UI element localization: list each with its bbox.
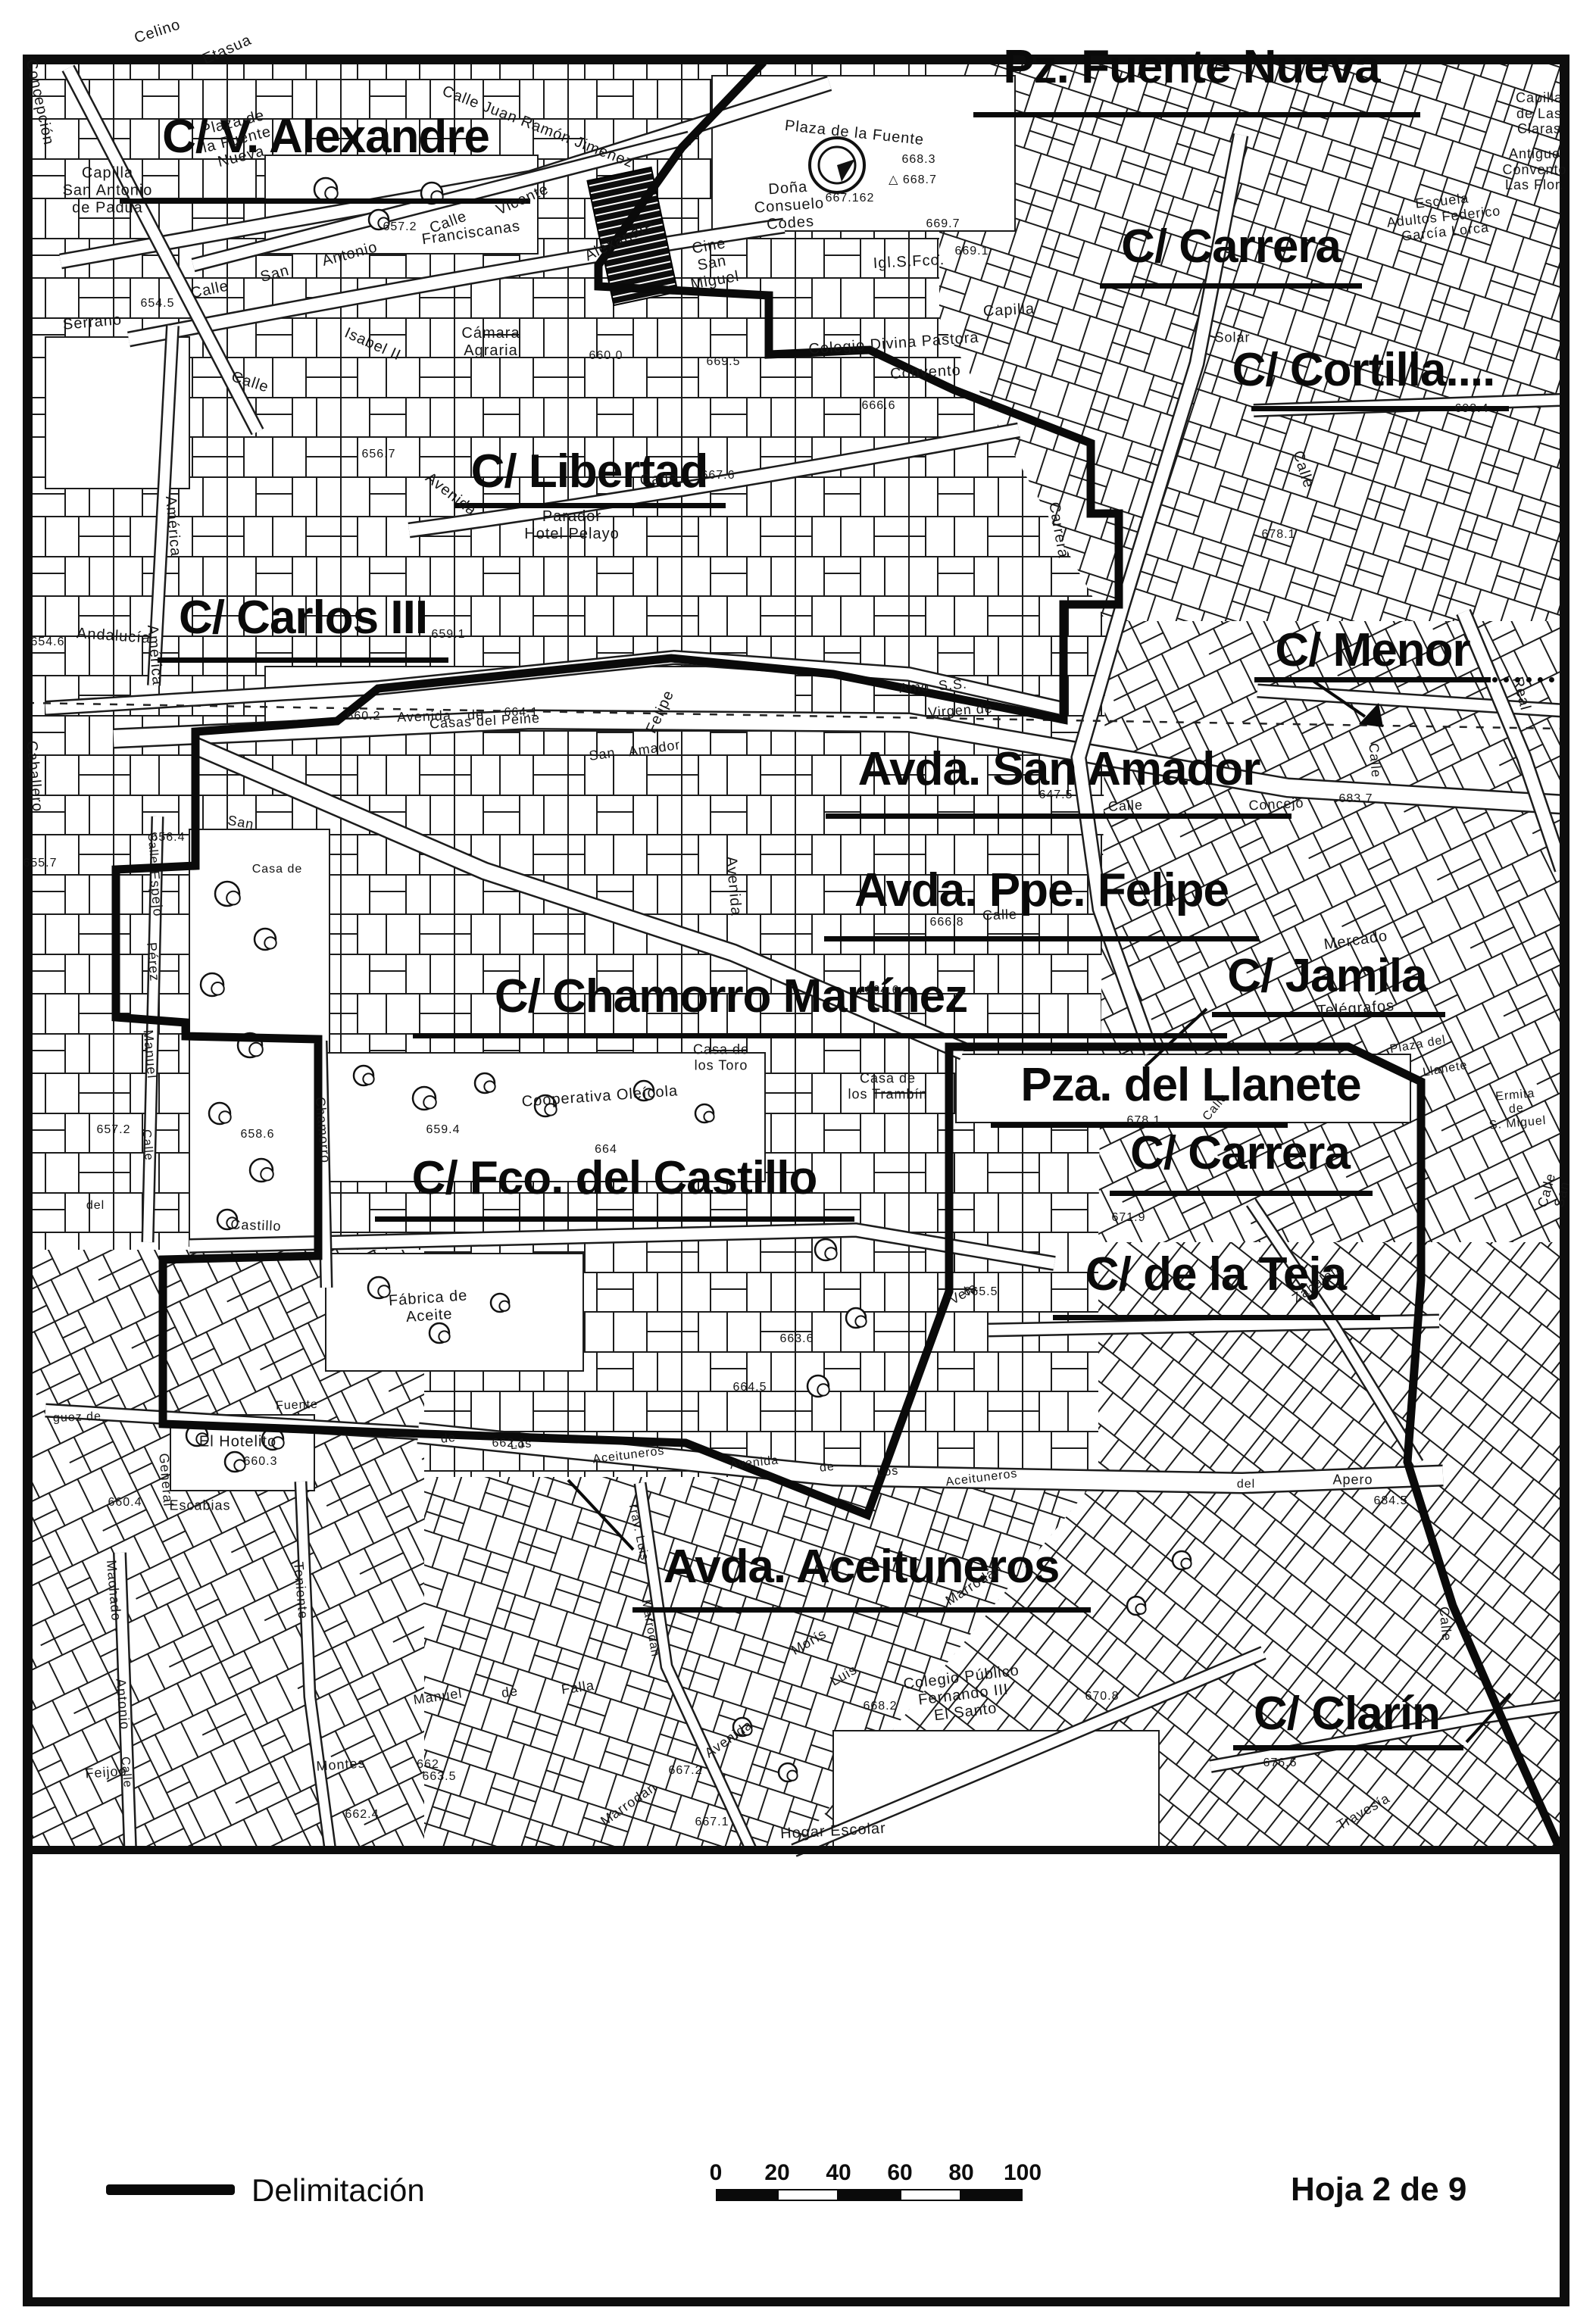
label-underline [1254,677,1491,682]
tree-icon [226,891,240,905]
scale-bar-segment [716,2189,777,2201]
map-minor-label: Doña Consuelo Codes [752,177,826,234]
label-underline [158,657,448,663]
map-minor-label: Apero [1332,1472,1373,1488]
street-major-label: C/ Carrera [1130,1130,1350,1177]
map-minor-label: Concejo [1248,795,1304,813]
label-underline [632,1607,1091,1613]
scale-tick-label: 60 [887,2160,912,2186]
border-bottom [23,2297,1569,2306]
border-left [23,55,33,2306]
tree-icon [787,1771,797,1781]
map-minor-label: Calle [144,832,161,865]
street-major-label: C/ Cortilla.... [1232,347,1495,394]
map-minor-label: Casa de los Toro [693,1041,749,1073]
map-minor-label: Escabias [169,1498,230,1514]
label-underline [973,112,1420,117]
street-major-label: C/ Clarín [1254,1691,1440,1738]
street-major-label: Avda. San Amador [858,746,1260,793]
map-minor-label: 667.6 [701,469,735,482]
tree-icon [363,1073,373,1084]
map-minor-label: Casa de los Trambín [848,1070,927,1101]
map-minor-label: Fuente [276,1398,318,1413]
street-major-label: Pza. del Llanete [1020,1062,1360,1109]
map-minor-label: 664.6 [865,984,899,998]
label-underline [1110,1191,1373,1196]
map-minor-label: de [467,707,485,723]
map-minor-label: 669.1 [954,245,989,258]
map-minor-label: 676.6 [1263,1756,1297,1770]
map-minor-label: 683.7 [1338,792,1373,806]
map-minor-label: 660.4 [108,1496,142,1510]
map-minor-label: 658.6 [240,1128,274,1141]
label-underline [1100,283,1362,289]
tree-icon [439,1331,449,1341]
map-minor-label: Castillo [230,1216,282,1234]
map-minor-label: Fábrica de Aceite [388,1287,469,1327]
map-minor-label: 665.5 [964,1285,998,1299]
map-minor-label: Avenida [397,707,451,725]
map-minor-label: 669.7 [926,217,960,231]
tree-icon [499,1301,509,1311]
map-minor-label: Capilla San Antonio de Padua [63,165,153,217]
street-major-label: C/ Menor [1275,627,1470,674]
map-minor-label: Los [510,1437,533,1453]
map-minor-label: 664.5 [732,1381,767,1394]
tree-icon [825,1247,836,1259]
map-minor-label: 657.2 [96,1123,130,1137]
sheet-number-label: Hoja 2 de 9 [1291,2171,1466,2209]
tree-icon [704,1112,714,1122]
map-minor-label: 666.8 [929,916,964,929]
delimitation-line-swatch [106,2184,235,2195]
map-minor-label: Capilla [982,301,1035,321]
map-minor-label: 667.162 [826,192,875,205]
street-major-label: Avda. Ppe. Felipe [854,867,1229,914]
map-minor-label: 657.2 [383,220,417,234]
scale-bar-segment [900,2189,961,2201]
map-minor-label: 667.1 [695,1816,729,1829]
map-minor-label: 660.3 [243,1455,277,1469]
map-minor-label: 668.2 [863,1700,897,1713]
map-minor-label: Calle [639,469,679,489]
map-minor-label: guez de [53,1410,102,1426]
map-minor-label: del [86,1199,105,1213]
map-minor-label: Capilla de Las Claras [1516,90,1563,137]
scale-bar-segment [839,2189,900,2201]
map-minor-label: 678.1 [1126,1114,1160,1128]
map-minor-label: 656.7 [361,448,395,461]
map-minor-label: 660.0 [589,349,623,363]
map-minor-label: Feijoo [85,1763,127,1781]
map-minor-label: 659.1 [431,628,465,642]
map-minor-label: Los [876,1464,900,1480]
scale-tick-label: 20 [764,2160,789,2186]
map-minor-label: 678.1 [1261,528,1295,542]
label-underline [375,1216,854,1222]
label-underline [120,198,530,204]
tree-icon [264,937,276,948]
map-minor-label: El Hotelito [199,1434,276,1451]
scale-tick-label: 80 [948,2160,973,2186]
map-minor-label: 664 [595,1143,617,1157]
map-minor-label: 684.5 [1373,1494,1407,1508]
map-minor-label: Antiguo Convento Las Flor. [1502,146,1566,193]
map-minor-label: △ 668.7 [889,173,937,187]
scale-bar-segment [777,2189,839,2201]
map-minor-label: Pérez [143,941,162,982]
tree-icon [484,1081,495,1091]
scale-tick-label: 0 [710,2160,723,2186]
tree-icon [855,1316,866,1326]
map-minor-label: 662.4 [345,1808,379,1822]
tree-icon [249,1043,263,1057]
map-minor-label: 666.6 [861,399,895,413]
label-underline [1233,1745,1463,1750]
label-underline [454,503,726,508]
map-minor-label: de [501,1683,520,1701]
street-major-label: C/ Carlos III [179,595,427,642]
map-minor-label: Cámara Agraria [461,325,520,360]
tree-icon [211,982,224,995]
street-major-label: Pz. Fuente Nueva [1003,44,1379,91]
map-minor-label: 671.9 [1111,1211,1145,1225]
map-minor-label: 654.5 [140,297,174,311]
map-minor-label: 693.4 [1454,402,1488,416]
map-minor-label: 659.4 [426,1123,460,1137]
map-minor-label: 669.5 [706,355,740,369]
tree-icon [1181,1559,1191,1569]
map-minor-label: Calle [1107,797,1143,814]
map-sheet: C/ V. AlexandrePz. Fuente NuevaC/ Carrer… [0,0,1596,2320]
tree-icon [1135,1604,1145,1614]
map-minor-label: 668.3 [901,153,935,167]
map-minor-label: del [1237,1478,1255,1491]
tree-icon [261,1168,273,1181]
tree-icon [219,1111,230,1123]
map-minor-label: de [819,1460,835,1475]
map-minor-label: Calle [982,907,1018,923]
street-major-label: C/ Carrera [1121,223,1341,270]
label-underline [824,936,1259,941]
scale-tick-label: 100 [1004,2160,1042,2186]
map-minor-label: Convento [890,362,962,383]
legend-delimitacion-label: Delimitación [251,2172,425,2209]
map-minor-label: 654.6 [30,635,64,649]
map-minor-label: Calle [1366,742,1385,779]
street-major-label: C/ Fco. del Castillo [412,1155,817,1202]
map-minor-label: 655.7 [23,857,57,870]
scale-bar-segment [961,2189,1023,2201]
map-minor-label: 667.2 [668,1764,702,1778]
map-minor-label: de [440,1432,457,1447]
map-minor-label: 663.5 [422,1770,456,1784]
map-area-divider [23,1846,1569,1854]
label-underline [826,813,1291,819]
tree-icon [423,1096,436,1109]
map-minor-label: Calle [1436,1606,1455,1642]
map-minor-label: 664.1 [504,706,538,720]
map-minor-label: Casa de [252,863,303,876]
map-minor-label: Calle [139,1129,155,1162]
label-underline [413,1033,1227,1038]
scale-tick-label: 40 [826,2160,851,2186]
map-minor-label: 670.8 [1085,1690,1119,1703]
map-minor-label: 663.6 [779,1332,814,1346]
map-minor-label: Ermita de S. Miguel [1486,1086,1547,1133]
tree-icon [817,1384,829,1395]
street-major-label: C/ Jamila [1227,953,1426,1000]
map-minor-label: 660.2 [346,710,380,723]
map-minor-label: 647.5 [1038,788,1073,802]
map-minor-label: Parador Hotel Pelayo [524,508,619,543]
label-underline [1053,1315,1380,1320]
map-minor-label: Solar [1214,330,1250,346]
map-minor-label: Cine San Miguel [683,233,741,293]
